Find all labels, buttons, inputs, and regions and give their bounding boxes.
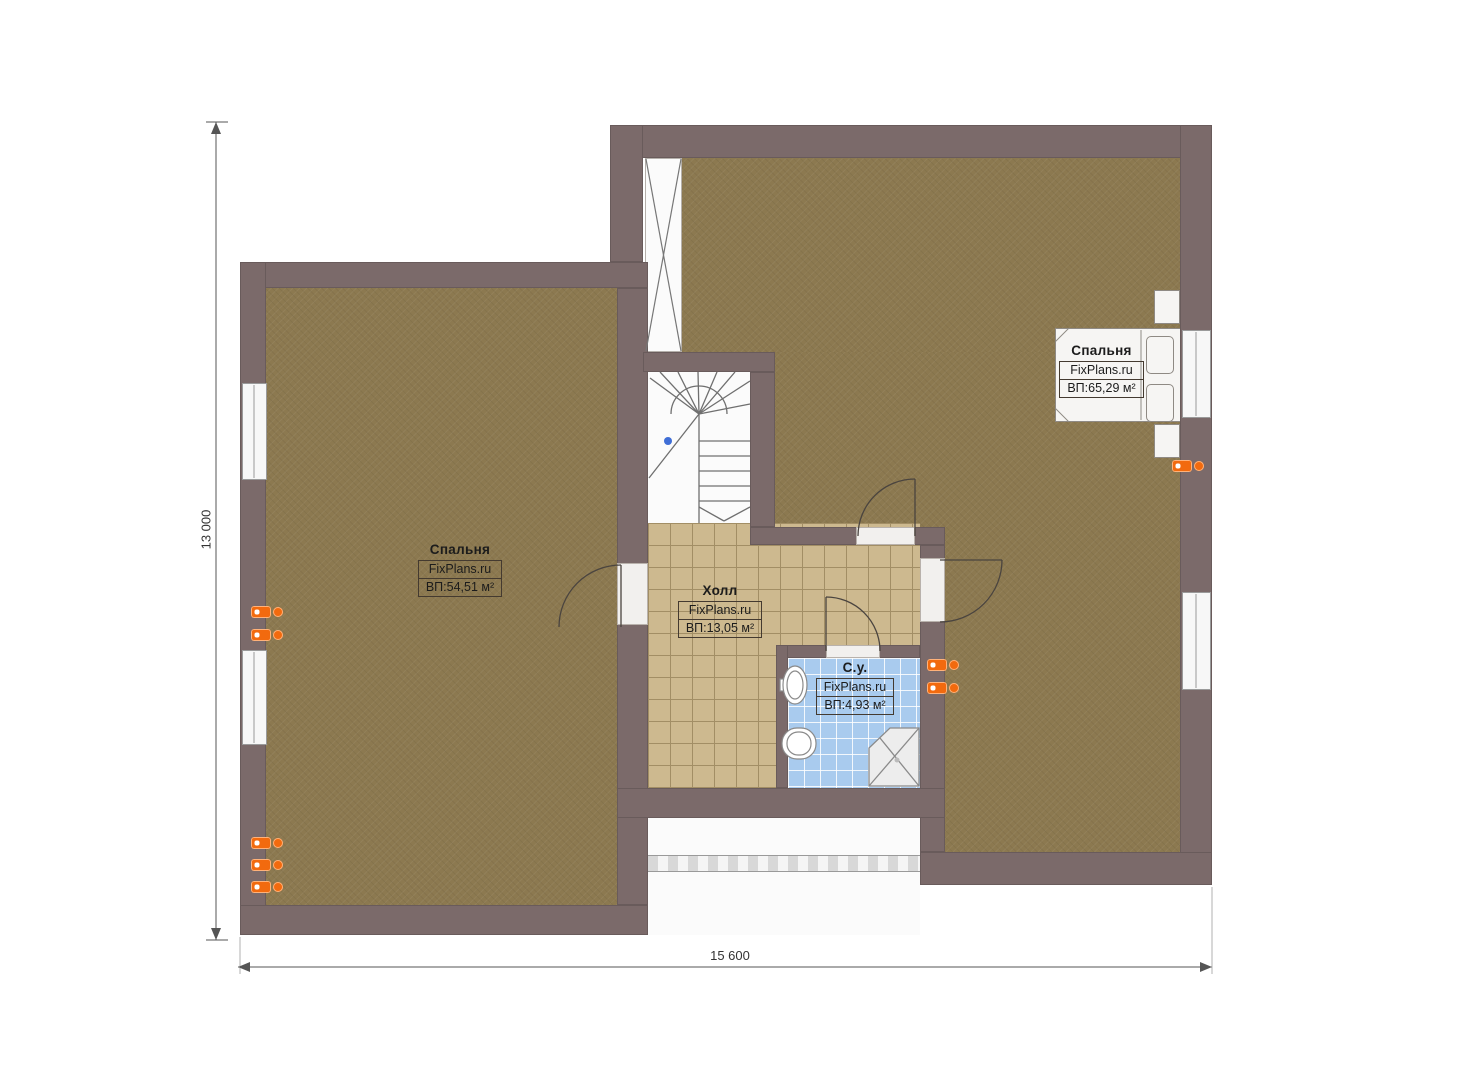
brand-watermark: FixPlans.ru [419, 561, 501, 578]
door-opening [920, 558, 945, 622]
radiator [927, 682, 959, 694]
room-area: ВП:4,93 м² [817, 696, 894, 714]
room-name: С.у. [805, 660, 905, 675]
room-name: Спальня [395, 542, 525, 557]
brand-watermark: FixPlans.ru [1060, 362, 1142, 379]
wall-segment [610, 125, 1212, 158]
radiator [251, 859, 283, 871]
room-area: ВП:13,05 м² [679, 619, 761, 637]
door-opening [617, 563, 648, 625]
staircase [648, 372, 750, 523]
floor-bedroom-right-top [682, 158, 1180, 352]
window [1182, 592, 1211, 690]
radiator [1172, 460, 1204, 472]
radiator [251, 837, 283, 849]
brand-watermark: FixPlans.ru [817, 679, 894, 696]
void-shaft [645, 158, 682, 352]
wall-segment [643, 352, 775, 372]
window [242, 650, 267, 745]
radiator [927, 659, 959, 671]
room-name: Спальня [1049, 343, 1154, 358]
door-opening [856, 527, 915, 545]
room-area: ВП:54,51 м² [419, 578, 501, 596]
balcony-railing [627, 855, 942, 872]
room-label-bathroom: С.у. FixPlans.ru ВП:4,93 м² [805, 660, 905, 715]
room-info-box: FixPlans.ru ВП:65,29 м² [1059, 361, 1143, 398]
brand-watermark: FixPlans.ru [679, 602, 761, 619]
wall-segment [610, 125, 643, 262]
nightstand [1154, 290, 1180, 324]
room-label-hall: Холл FixPlans.ru ВП:13,05 м² [670, 583, 770, 638]
radiator [251, 629, 283, 641]
radiator [251, 606, 283, 618]
dimension-width-label: 15 600 [695, 948, 765, 963]
wall-segment [750, 372, 775, 527]
room-label-bedroom-right: Спальня FixPlans.ru ВП:65,29 м² [1049, 343, 1154, 398]
wall-segment [750, 527, 945, 545]
window [1182, 330, 1211, 418]
dimension-height-label: 13 000 [199, 500, 214, 560]
window [242, 383, 267, 480]
wall-segment [240, 905, 648, 935]
wall-segment [920, 852, 1212, 885]
floor-bedroom-right-east [945, 527, 1180, 852]
room-name: Холл [670, 583, 770, 598]
nightstand [1154, 424, 1180, 458]
room-info-box: FixPlans.ru ВП:54,51 м² [418, 560, 502, 597]
door-opening [826, 645, 880, 658]
wall-segment [240, 262, 648, 288]
room-info-box: FixPlans.ru ВП:13,05 м² [678, 601, 762, 638]
balcony-recess [648, 818, 920, 935]
room-area: ВП:65,29 м² [1060, 379, 1142, 397]
room-label-bedroom-left: Спальня FixPlans.ru ВП:54,51 м² [395, 542, 525, 597]
wall-segment [1180, 125, 1212, 885]
wall-segment [240, 262, 266, 935]
radiator [251, 881, 283, 893]
floor-plan-canvas: Спальня FixPlans.ru ВП:54,51 м² Холл Fix… [0, 0, 1474, 1080]
wall-segment [776, 645, 788, 788]
wall-segment [617, 788, 945, 818]
room-info-box: FixPlans.ru ВП:4,93 м² [816, 678, 895, 715]
